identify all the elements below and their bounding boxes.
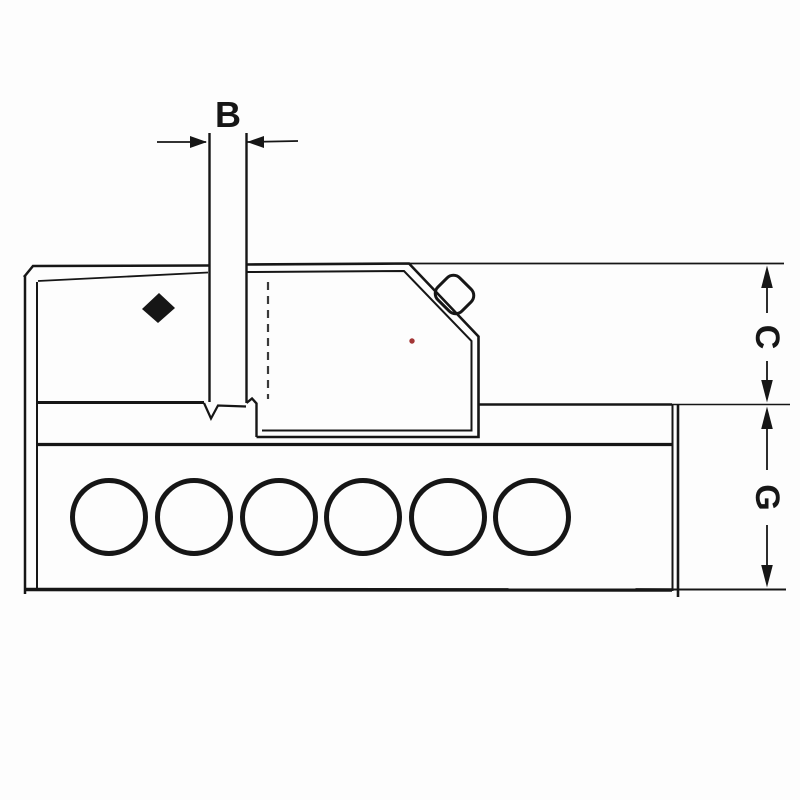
drawing-background	[0, 0, 800, 800]
dim-label-c: C	[748, 325, 786, 350]
dim-label-b: B	[215, 94, 241, 135]
base-bottom-line	[24, 590, 672, 591]
technical-drawing-canvas: B C	[0, 0, 800, 800]
drawing-page: B C	[0, 0, 800, 800]
red-dot-marker	[409, 338, 414, 343]
dim-label-g: G	[748, 484, 786, 510]
